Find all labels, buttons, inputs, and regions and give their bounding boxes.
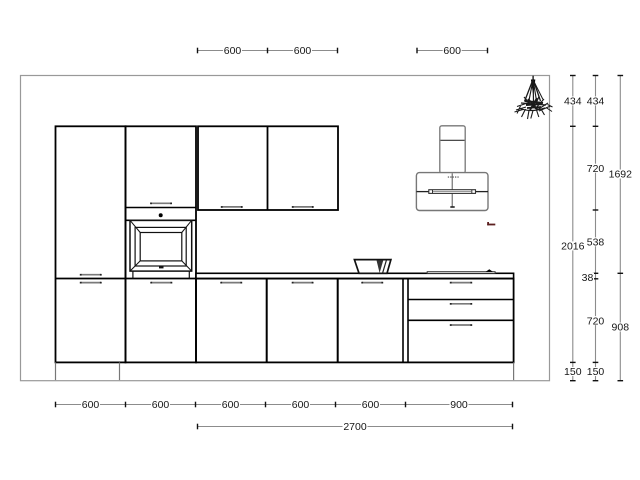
svg-text:434: 434 [587, 96, 605, 108]
svg-text:434: 434 [564, 96, 582, 108]
svg-text:1692: 1692 [609, 169, 633, 181]
svg-text:908: 908 [612, 322, 630, 334]
svg-text:720: 720 [587, 163, 605, 175]
svg-text:720: 720 [587, 315, 605, 327]
svg-text:600: 600 [152, 399, 170, 411]
svg-text:600: 600 [222, 399, 240, 411]
svg-text:600: 600 [82, 399, 100, 411]
svg-text:2016: 2016 [561, 241, 585, 253]
svg-text:600: 600 [362, 399, 380, 411]
svg-text:600: 600 [224, 45, 242, 57]
svg-text:600: 600 [443, 45, 461, 57]
svg-text:150: 150 [564, 366, 582, 378]
svg-text:600: 600 [292, 399, 310, 411]
svg-text:900: 900 [450, 399, 468, 411]
svg-text:150: 150 [587, 366, 605, 378]
svg-text:38: 38 [582, 272, 594, 284]
svg-text:2700: 2700 [343, 421, 367, 433]
svg-text:600: 600 [294, 45, 312, 57]
svg-text:538: 538 [587, 237, 605, 249]
